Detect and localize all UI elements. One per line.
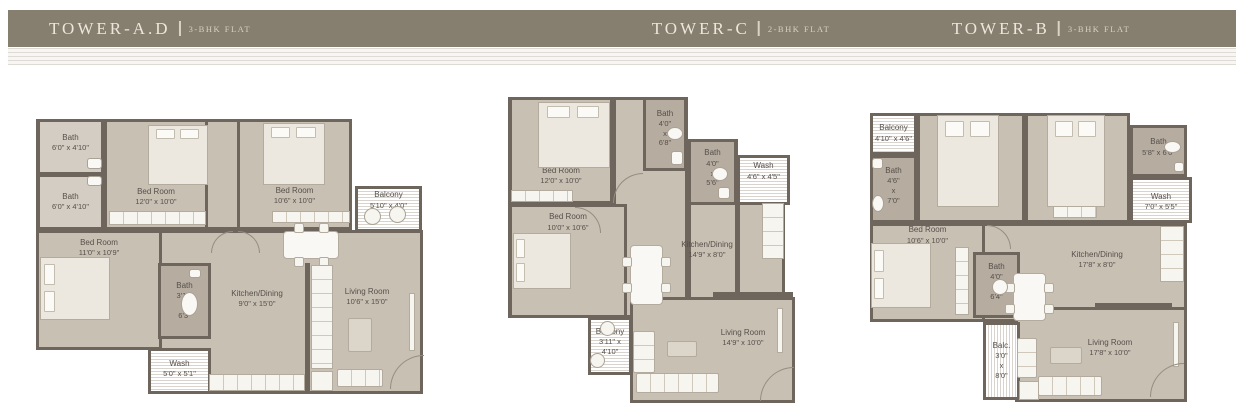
rug-icon: [667, 341, 697, 357]
tower-ad-title: TOWER-A.D 3-BHK FLAT: [49, 19, 251, 39]
balcony-chair-icon: [590, 353, 605, 368]
room-wash: Wash4'6" x 4'5": [737, 155, 790, 205]
chair-icon: [1005, 304, 1015, 314]
wash-basin-icon: [87, 176, 102, 186]
wash-basin-icon: [671, 151, 683, 165]
tv-unit-icon: [777, 308, 783, 353]
pillow-icon: [874, 278, 883, 299]
header-stripe-band: [8, 48, 1236, 65]
tower-b-title: TOWER-B 3-BHK FLAT: [952, 19, 1131, 39]
chair-icon: [319, 223, 329, 233]
room-wash: Wash7'0" x 5'5": [1130, 177, 1192, 223]
room-living-room: Living Room14'9" x 10'0": [708, 323, 778, 353]
balcony-chair-icon: [389, 206, 406, 223]
kitchen-counter-icon: [1160, 226, 1184, 282]
dining-table-icon: [1013, 273, 1046, 321]
sofa-icon: [337, 369, 383, 387]
bed-icon: [263, 123, 325, 185]
toilet-icon: [667, 127, 683, 140]
balcony-chair-icon: [364, 208, 381, 225]
room-dimensions: 12'0" x 10'0": [492, 176, 630, 186]
partition-wall-icon: [713, 292, 793, 298]
room-kitchen-dining: Kitchen/Dining9'0" x 15'0": [217, 282, 297, 316]
room-label: Balcony5'10" x 4'0": [338, 190, 439, 210]
room-balcony-2: Balc.3'0"x8'0": [983, 322, 1020, 400]
room-name: Bed Room: [853, 225, 1002, 235]
tower-name: TOWER-B: [952, 19, 1050, 39]
room-kitchen-dining: Kitchen/Dining14'9" x 8'0": [667, 235, 747, 265]
partition-wall-icon: [1095, 303, 1172, 309]
sofa-icon: [636, 373, 719, 393]
pillow-icon: [970, 121, 989, 137]
wash-basin-icon: [718, 187, 730, 199]
toilet-icon: [872, 195, 884, 212]
floor-plan-sheet: { "colors":{ "wall":"#6E665D","floor":"#…: [0, 0, 1244, 407]
sofa-icon: [1038, 376, 1102, 396]
wash-basin-icon: [872, 158, 883, 169]
bed-icon: [871, 243, 931, 308]
floorplan-tower-c: Bed Room12'0" x 10'0"Bath4'0"x6'8"Bath4'…: [505, 95, 803, 405]
bed-icon: [148, 125, 208, 185]
room-name: Bed Room: [492, 212, 644, 222]
tower-name: TOWER-C: [652, 19, 750, 39]
flat-type: 2-BHK FLAT: [768, 24, 830, 34]
wardrobe-icon: [511, 190, 573, 202]
tv-unit-icon: [1173, 322, 1179, 367]
room-dimensions: 10'6" x 10'0": [220, 196, 369, 206]
floorplan-tower-ad: Bath6'0" x 4'10"Bath6'0" x 4'10"Bed Room…: [35, 112, 430, 398]
room-dimensions: 10'0" x 10'6": [492, 222, 644, 232]
room-name: Balcony: [338, 190, 439, 200]
kitchen-counter-icon: [762, 203, 784, 259]
title-divider: [758, 21, 760, 36]
toilet-icon: [1164, 141, 1181, 153]
toilet-icon: [992, 279, 1008, 295]
pillow-icon: [516, 239, 525, 257]
bed-icon: [1047, 115, 1105, 207]
flat-type: 3-BHK FLAT: [189, 24, 251, 34]
room-living-room: Living Room17'8" x 10'0": [1070, 333, 1150, 363]
armchair-icon: [1017, 338, 1037, 378]
kitchen-counter-icon: [209, 374, 305, 391]
dining-table-icon: [283, 231, 339, 259]
toilet-icon: [181, 292, 198, 316]
room-label: Bed Room12'0" x 10'0": [492, 166, 630, 186]
tower-c-title: TOWER-C 2-BHK FLAT: [652, 19, 831, 39]
room-dimensions: 5'10" x 4'0": [338, 201, 439, 211]
tower-name: TOWER-A.D: [49, 19, 171, 39]
pillow-icon: [945, 121, 964, 137]
room-wash: Wash5'0" x 5'1": [148, 348, 211, 394]
armchair-icon: [633, 331, 655, 373]
chair-icon: [1044, 283, 1054, 293]
pillow-icon: [156, 129, 175, 139]
wardrobe-icon: [955, 247, 969, 315]
balcony-chair-icon: [600, 321, 615, 336]
chair-icon: [294, 257, 304, 267]
bed-icon: [937, 115, 999, 207]
dining-table-icon: [630, 245, 663, 305]
chair-icon: [661, 283, 671, 293]
pillow-icon: [516, 263, 525, 281]
header-bar: TOWER-A.D 3-BHK FLAT TOWER-C 2-BHK FLAT …: [8, 10, 1236, 47]
room-name: Bed Room: [19, 238, 179, 248]
room-balcony-1: Balcony4'10" x 4'6": [870, 113, 917, 155]
room-dimensions: 12'0" x 10'0": [87, 197, 225, 207]
room-label: Bed Room10'6" x 10'0": [220, 185, 369, 205]
bed-icon: [40, 257, 110, 320]
tv-unit-icon: [409, 293, 415, 351]
wardrobe-icon: [1053, 206, 1097, 218]
wash-basin-icon: [1174, 162, 1184, 172]
pillow-icon: [1055, 121, 1073, 137]
kitchen-counter-icon: [311, 265, 333, 369]
room-label: Bed Room11'0" x 10'9": [19, 238, 179, 258]
wardrobe-icon: [272, 211, 350, 223]
chair-icon: [661, 257, 671, 267]
flat-type: 3-BHK FLAT: [1068, 24, 1130, 34]
chair-icon: [294, 223, 304, 233]
room-label: Bed Room12'0" x 10'0": [87, 186, 225, 206]
pillow-icon: [547, 106, 569, 118]
bed-icon: [538, 102, 610, 168]
chair-icon: [622, 283, 632, 293]
wardrobe-icon: [109, 211, 206, 225]
bed-icon: [513, 233, 571, 289]
pillow-icon: [180, 129, 199, 139]
pillow-icon: [44, 264, 55, 285]
partition-wall-icon: [305, 263, 310, 394]
pillow-icon: [1078, 121, 1096, 137]
sink-unit-icon: [311, 371, 333, 391]
room-name: Bed Room: [220, 185, 369, 195]
wash-basin-icon: [189, 269, 201, 278]
toilet-icon: [712, 167, 728, 181]
title-divider: [179, 21, 181, 36]
room-kitchen-dining: Kitchen/Dining17'8" x 8'0": [1057, 245, 1137, 275]
pillow-icon: [577, 106, 599, 118]
chair-icon: [622, 257, 632, 267]
room-name: Bed Room: [87, 186, 225, 196]
wash-basin-icon: [87, 158, 102, 169]
sink-unit-icon: [1019, 381, 1039, 400]
pillow-icon: [271, 127, 290, 138]
room-label: Bed Room10'0" x 10'6": [492, 212, 644, 232]
room-living-room: Living Room10'6" x 15'0": [332, 282, 402, 312]
chair-icon: [1044, 304, 1054, 314]
title-divider: [1058, 21, 1060, 36]
rug-icon: [348, 318, 372, 352]
pillow-icon: [874, 250, 883, 271]
floorplan-tower-b: Balcony4'10" x 4'6"Bath4'6"x7'0"Bed Room…: [870, 105, 1202, 405]
room-balcony: Balcony5'10" x 4'0": [355, 186, 422, 232]
pillow-icon: [44, 291, 55, 312]
pillow-icon: [296, 127, 315, 138]
rug-icon: [1050, 347, 1082, 364]
